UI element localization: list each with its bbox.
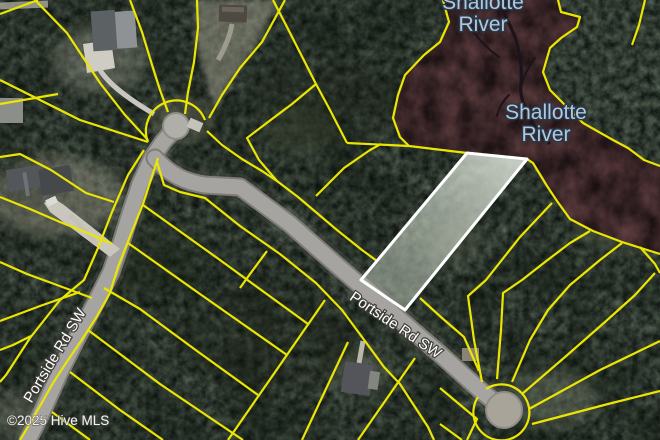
svg-text:River: River bbox=[521, 123, 570, 146]
svg-text:River: River bbox=[458, 13, 507, 36]
svg-text:Shallotte: Shallotte bbox=[505, 101, 587, 124]
svg-text:©2025 Hive MLS: ©2025 Hive MLS bbox=[7, 413, 109, 428]
svg-text:Shallotte: Shallotte bbox=[442, 0, 524, 14]
